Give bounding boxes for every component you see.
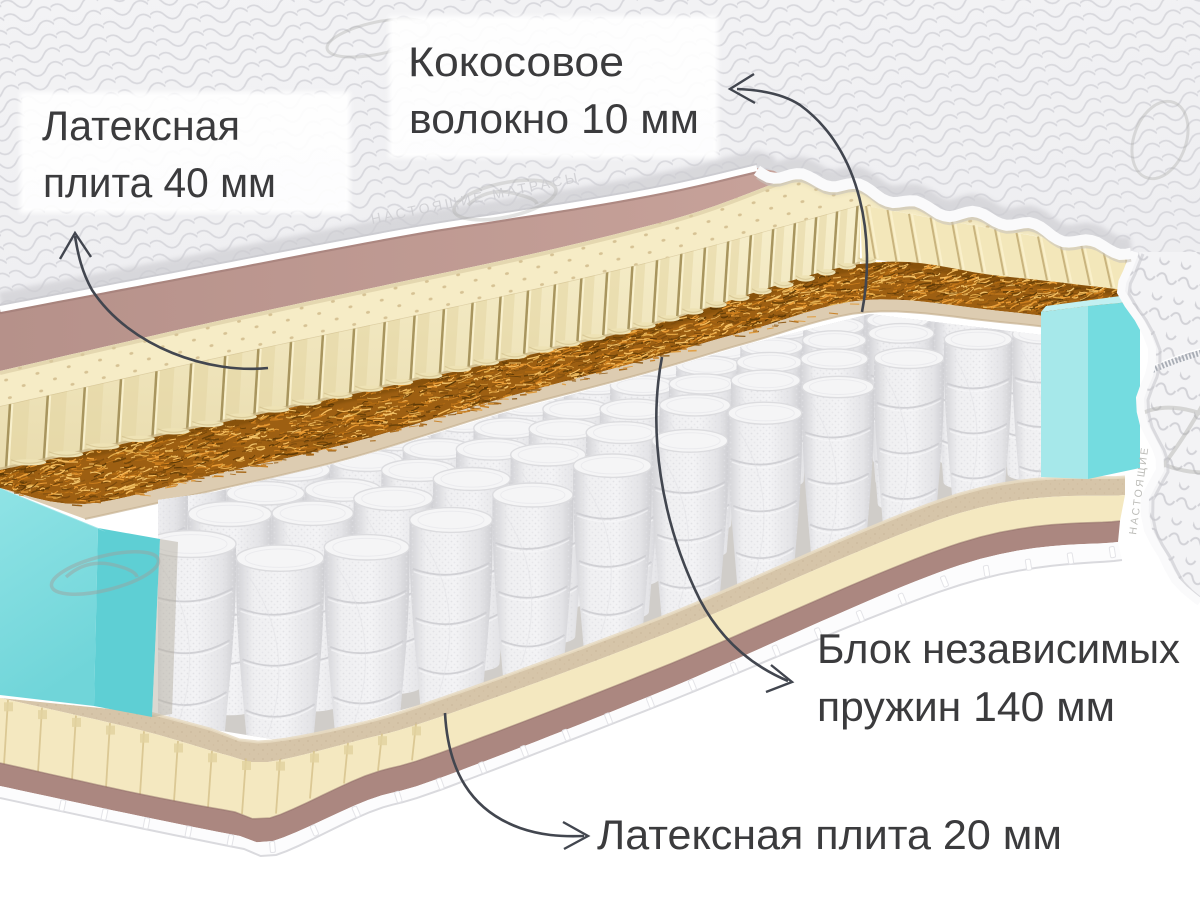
svg-text:Кокосовое: Кокосовое xyxy=(408,38,624,85)
svg-text:Латексная плита 20 мм: Латексная плита 20 мм xyxy=(597,811,1062,858)
svg-text:плита 40 мм: плита 40 мм xyxy=(43,159,276,206)
svg-text:волокно 10 мм: волокно 10 мм xyxy=(409,95,699,142)
svg-text:Латексная: Латексная xyxy=(42,102,240,149)
svg-text:Блок независимых: Блок независимых xyxy=(817,625,1180,672)
svg-text:пружин 140 мм: пружин 140 мм xyxy=(817,683,1115,730)
